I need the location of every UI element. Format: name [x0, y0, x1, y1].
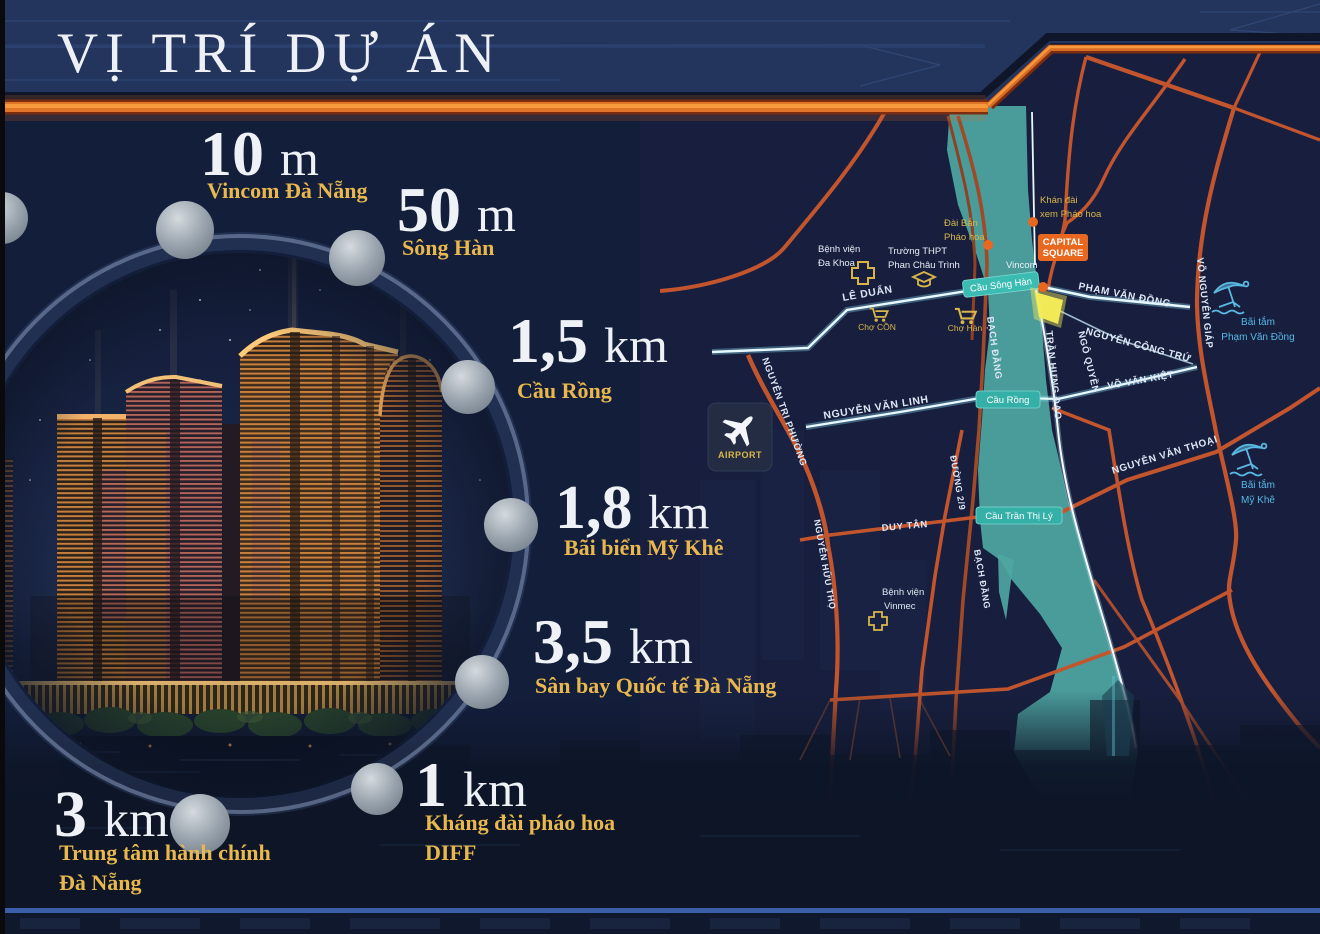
svg-text:Khán đài: Khán đài: [1040, 195, 1078, 206]
svg-text:Đài Bắn: Đài Bắn: [944, 218, 978, 229]
svg-text:SQUARE: SQUARE: [1043, 248, 1084, 259]
svg-text:Chợ CỒN: Chợ CỒN: [858, 321, 896, 332]
svg-text:Bãi tắm: Bãi tắm: [1241, 315, 1275, 328]
svg-text:Đa Khoa: Đa Khoa: [818, 258, 856, 269]
svg-text:Vinmec: Vinmec: [884, 601, 916, 612]
svg-text:xem Pháo hoa: xem Pháo hoa: [1040, 209, 1102, 220]
svg-text:Bệnh viện: Bệnh viện: [882, 587, 924, 598]
svg-text:AIRPORT: AIRPORT: [718, 450, 762, 460]
svg-text:Vincom: Vincom: [1006, 260, 1038, 271]
svg-text:Bãi tắm: Bãi tắm: [1241, 478, 1275, 491]
svg-text:Bệnh viện: Bệnh viện: [818, 244, 860, 255]
svg-text:Cầu Trần Thị Lý: Cầu Trần Thị Lý: [985, 511, 1053, 522]
svg-text:Trường THPT: Trường THPT: [888, 246, 947, 257]
svg-text:Phạm Văn Đồng: Phạm Văn Đồng: [1221, 331, 1294, 343]
svg-text:Cầu Rồng: Cầu Rồng: [987, 395, 1030, 406]
svg-text:CAPITAL: CAPITAL: [1043, 237, 1084, 248]
svg-text:Chợ Hàn: Chợ Hàn: [948, 323, 983, 333]
svg-text:Mỹ Khê: Mỹ Khê: [1241, 495, 1275, 506]
svg-text:Phan Châu Trình: Phan Châu Trình: [888, 260, 960, 271]
svg-text:Pháo hoa: Pháo hoa: [944, 232, 985, 243]
